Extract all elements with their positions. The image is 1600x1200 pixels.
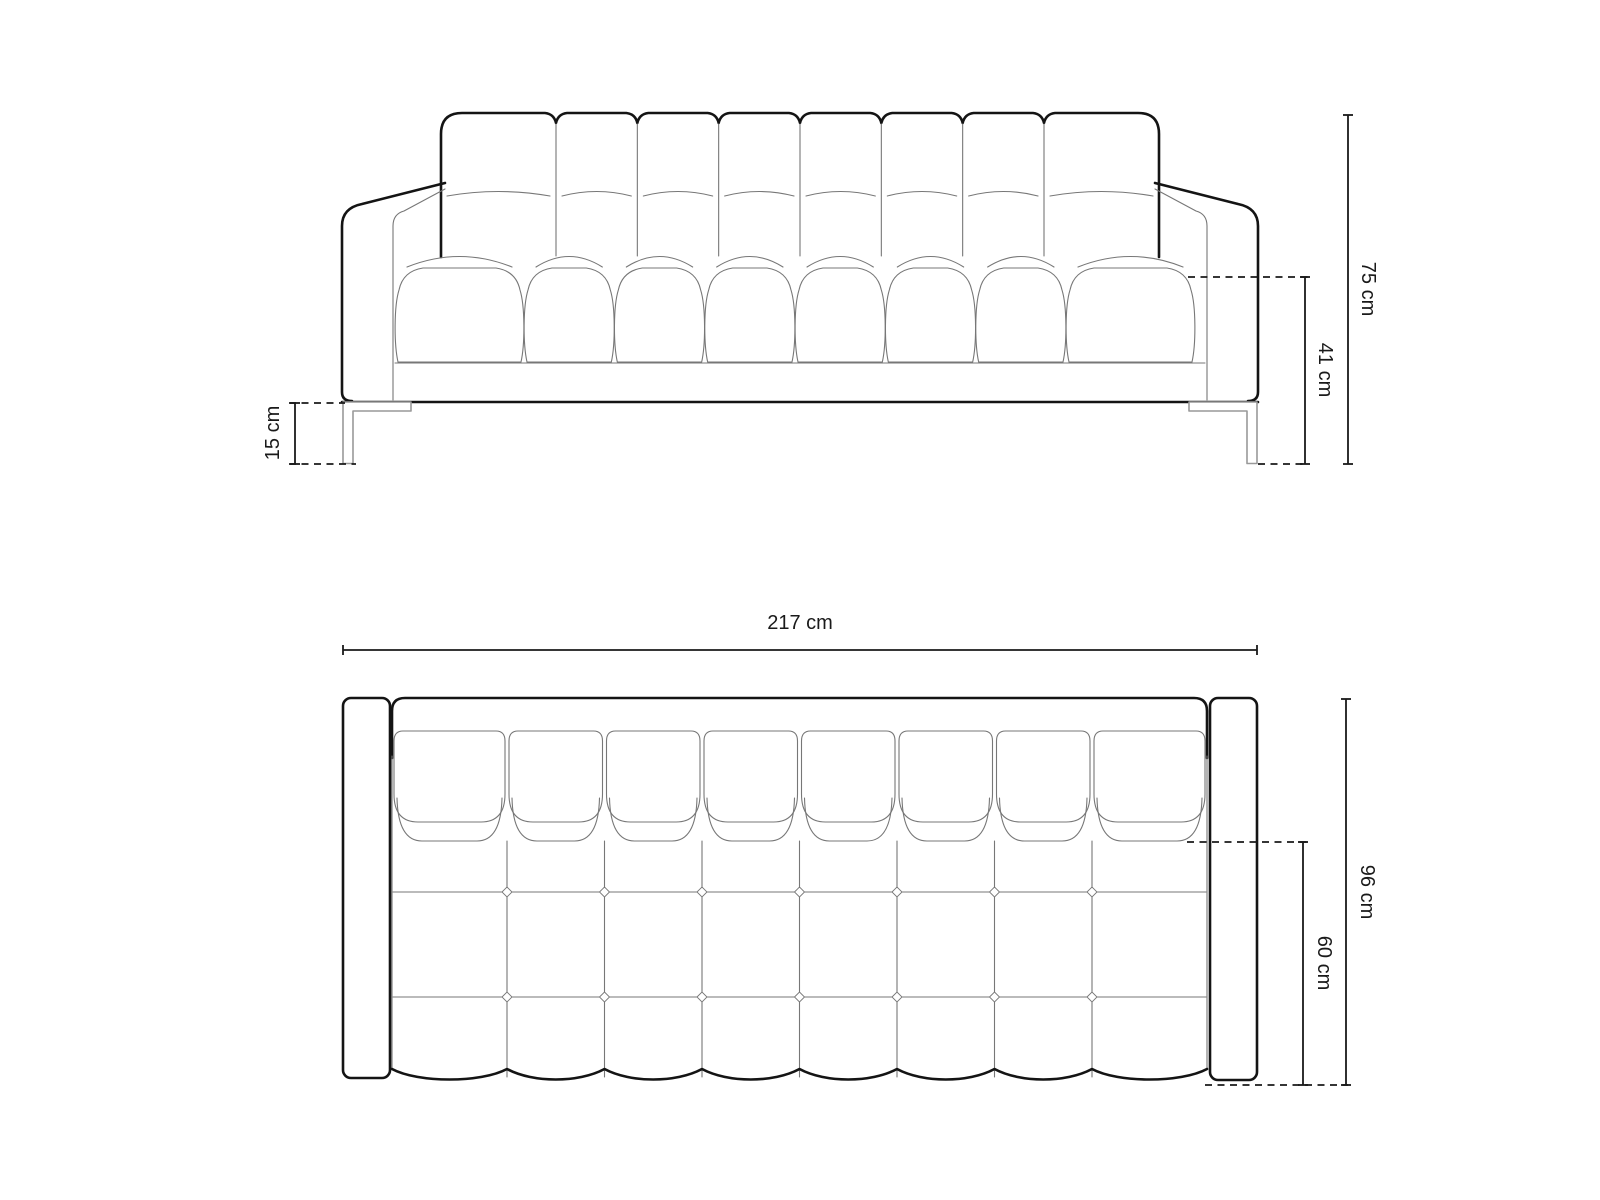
seat-cushion	[795, 268, 885, 362]
leg-height-label: 15 cm	[262, 406, 284, 460]
tuft-point	[990, 992, 1000, 1002]
seat-cushion	[976, 268, 1066, 362]
dimension-overall-height: 75 cm	[1343, 115, 1379, 464]
diagram-canvas: 75 cm 41 cm 15 cm	[0, 0, 1600, 1200]
seat-back-bulge	[536, 257, 602, 268]
tuft-point	[1087, 992, 1097, 1002]
tuft-point	[697, 992, 707, 1002]
top-back-cushion	[802, 731, 896, 822]
seat-cushion	[395, 268, 524, 362]
top-back-cushion	[607, 731, 701, 822]
seat-cushion	[524, 268, 614, 362]
seat-back-bulge	[897, 257, 963, 268]
dimension-leg-height: 15 cm	[262, 403, 356, 464]
top-seat-grid	[393, 841, 1206, 1077]
seat-cushion	[1066, 268, 1195, 362]
tuft-point	[892, 887, 902, 897]
tuft-point	[990, 887, 1000, 897]
top-plan-view: 217 cm 96 cm	[343, 612, 1378, 1085]
seat-cushion	[705, 268, 795, 362]
front-right-leg	[1189, 402, 1257, 464]
seat-height-label: 41 cm	[1314, 343, 1336, 397]
tuft-point	[600, 992, 610, 1002]
tuft-point	[502, 992, 512, 1002]
tuft-point	[795, 992, 805, 1002]
top-back-cushion	[899, 731, 993, 822]
top-back-cushion	[704, 731, 798, 822]
top-back-cushion	[394, 731, 505, 822]
seat-back-bulge	[626, 257, 692, 268]
dimension-seat-height: 41 cm	[1188, 277, 1336, 464]
dimension-overall-depth: 96 cm	[1341, 699, 1378, 1085]
overall-depth-label: 96 cm	[1356, 865, 1378, 919]
overall-height-label: 75 cm	[1357, 262, 1379, 316]
top-back-cushions	[394, 731, 1205, 841]
tuft-point	[697, 887, 707, 897]
front-backrest	[441, 113, 1159, 257]
tuft-point	[1087, 887, 1097, 897]
front-elevation-view: 75 cm 41 cm 15 cm	[262, 113, 1379, 464]
top-back-cushion	[509, 731, 603, 822]
tuft-point	[892, 992, 902, 1002]
sofa-dimension-sheet: 75 cm 41 cm 15 cm	[0, 0, 1600, 1200]
seat-cushion	[885, 268, 975, 362]
tuft-point	[502, 887, 512, 897]
top-back-cushion	[1094, 731, 1205, 822]
tuft-point	[795, 887, 805, 897]
top-back-cushion	[997, 731, 1091, 822]
tuft-point	[600, 887, 610, 897]
seat-depth-label: 60 cm	[1313, 936, 1335, 990]
dimension-overall-width: 217 cm	[343, 612, 1257, 655]
seat-back-bulge	[807, 257, 873, 268]
seat-back-bulge	[988, 257, 1054, 268]
front-seat-cushions	[395, 257, 1195, 363]
overall-width-label: 217 cm	[767, 612, 833, 634]
front-left-leg	[343, 402, 411, 464]
seat-back-bulge	[407, 257, 512, 268]
top-right-armrest	[1210, 698, 1257, 1080]
seat-cushion	[614, 268, 704, 362]
seat-back-bulge	[717, 257, 783, 268]
seat-back-bulge	[1078, 257, 1183, 268]
top-left-armrest	[343, 698, 390, 1078]
